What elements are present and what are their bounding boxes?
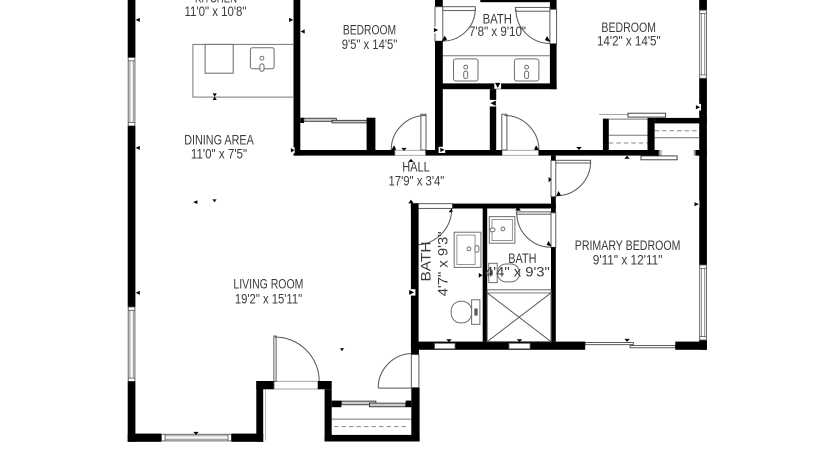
svg-text:14'2" x 14'5": 14'2" x 14'5" (597, 33, 661, 48)
svg-text:PRIMARY BEDROOM: PRIMARY BEDROOM (575, 238, 681, 253)
svg-text:7'8" x 9'10": 7'8" x 9'10" (469, 24, 526, 39)
svg-text:BATH: BATH (419, 242, 434, 282)
svg-text:19'2" x 15'11": 19'2" x 15'11" (235, 292, 302, 307)
svg-text:LIVING ROOM: LIVING ROOM (233, 277, 303, 292)
svg-text:DINING AREA: DINING AREA (184, 132, 254, 147)
svg-text:11'0" x 10'8": 11'0" x 10'8" (185, 4, 247, 19)
svg-text:11'0" x 7'5": 11'0" x 7'5" (191, 147, 247, 162)
svg-text:HALL: HALL (402, 160, 430, 175)
svg-text:4'4" x 9'3": 4'4" x 9'3" (485, 264, 550, 279)
svg-text:4'7" x 9'3": 4'7" x 9'3" (436, 231, 451, 296)
svg-text:BEDROOM: BEDROOM (343, 23, 396, 38)
svg-text:9'5" x 14'5": 9'5" x 14'5" (342, 37, 398, 52)
svg-text:17'9" x 3'4": 17'9" x 3'4" (389, 173, 445, 188)
svg-text:9'11" x 12'11": 9'11" x 12'11" (593, 253, 663, 268)
